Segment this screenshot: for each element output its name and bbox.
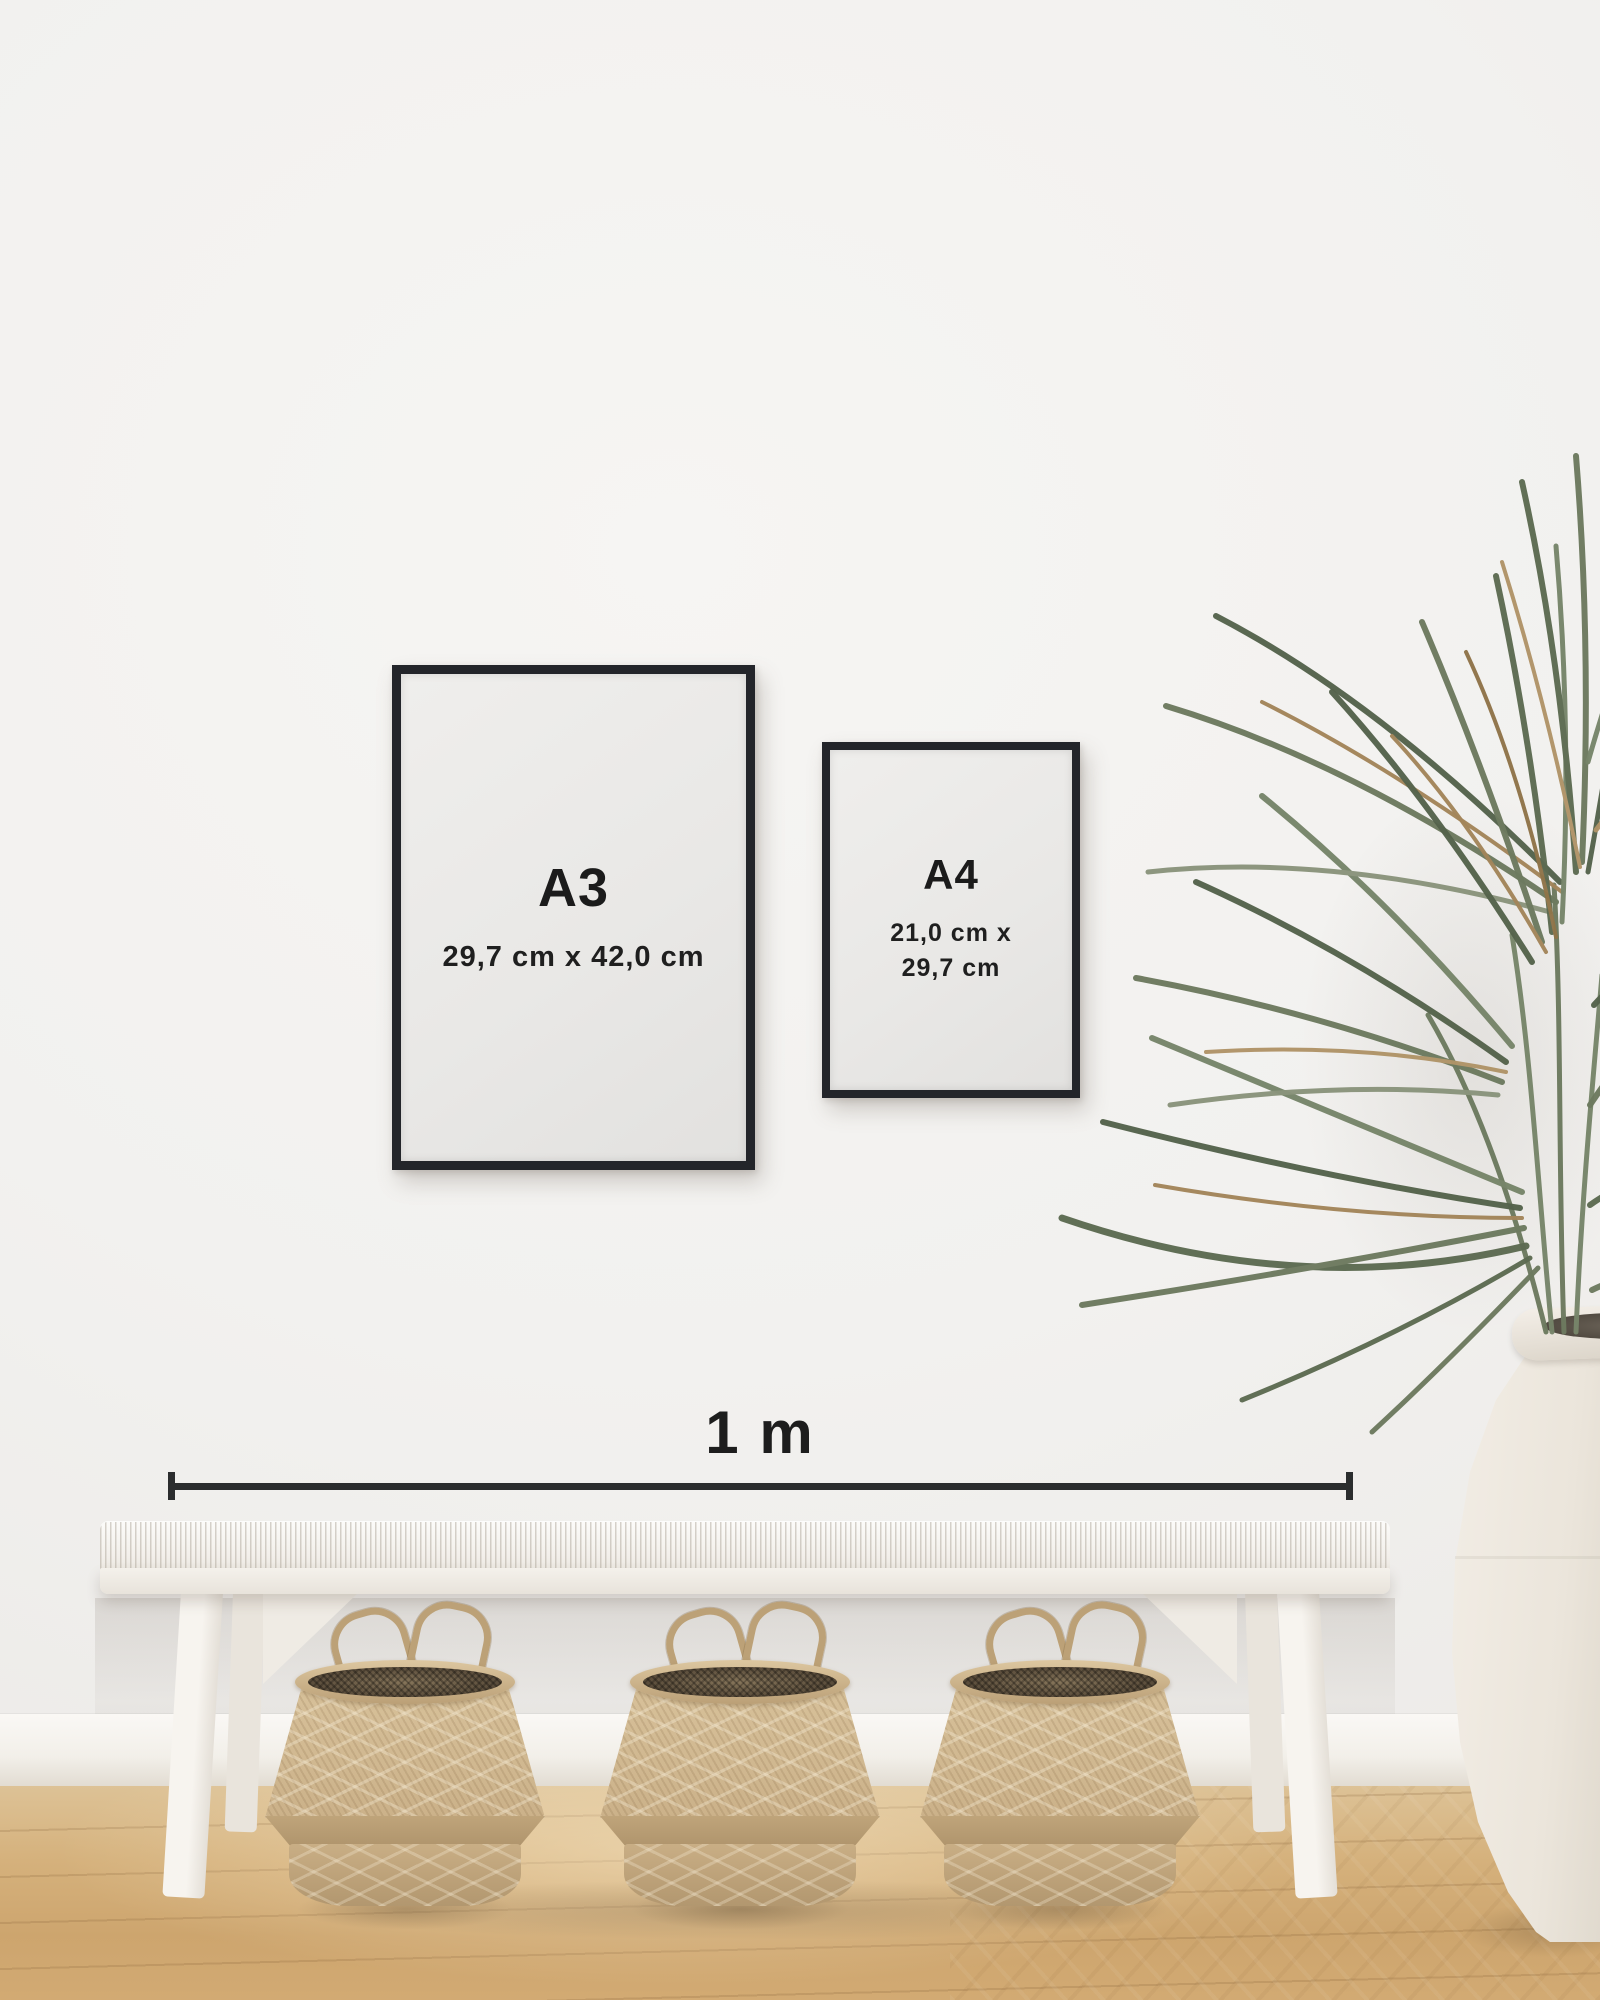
basket-flange [920, 1816, 1200, 1846]
bench-rail [100, 1568, 1390, 1594]
basket-flange [265, 1816, 545, 1846]
basket-opening [963, 1667, 1157, 1697]
palm-fronds-middle [1136, 616, 1562, 1105]
basket-opening [643, 1667, 837, 1697]
basket-foot [624, 1844, 856, 1906]
basket-foot [944, 1844, 1176, 1906]
basket-opening [308, 1667, 502, 1697]
bench-woven-top [100, 1522, 1390, 1570]
palm-fronds-right [1588, 562, 1600, 1290]
palm-fronds-upper [1332, 456, 1600, 962]
seagrass-basket [920, 1612, 1200, 1912]
palm-fronds-lower [1062, 1038, 1538, 1432]
basket-rim [950, 1660, 1170, 1704]
poster-mockup-scene: A3 29,7 cm x 42,0 cm A4 21,0 cm x 29,7 c… [0, 0, 1600, 2000]
basket-rim [630, 1660, 850, 1704]
basket-rim [295, 1660, 515, 1704]
basket-flange [600, 1816, 880, 1846]
basket-foot [289, 1844, 521, 1906]
seagrass-basket [600, 1612, 880, 1912]
seagrass-basket [265, 1612, 545, 1912]
